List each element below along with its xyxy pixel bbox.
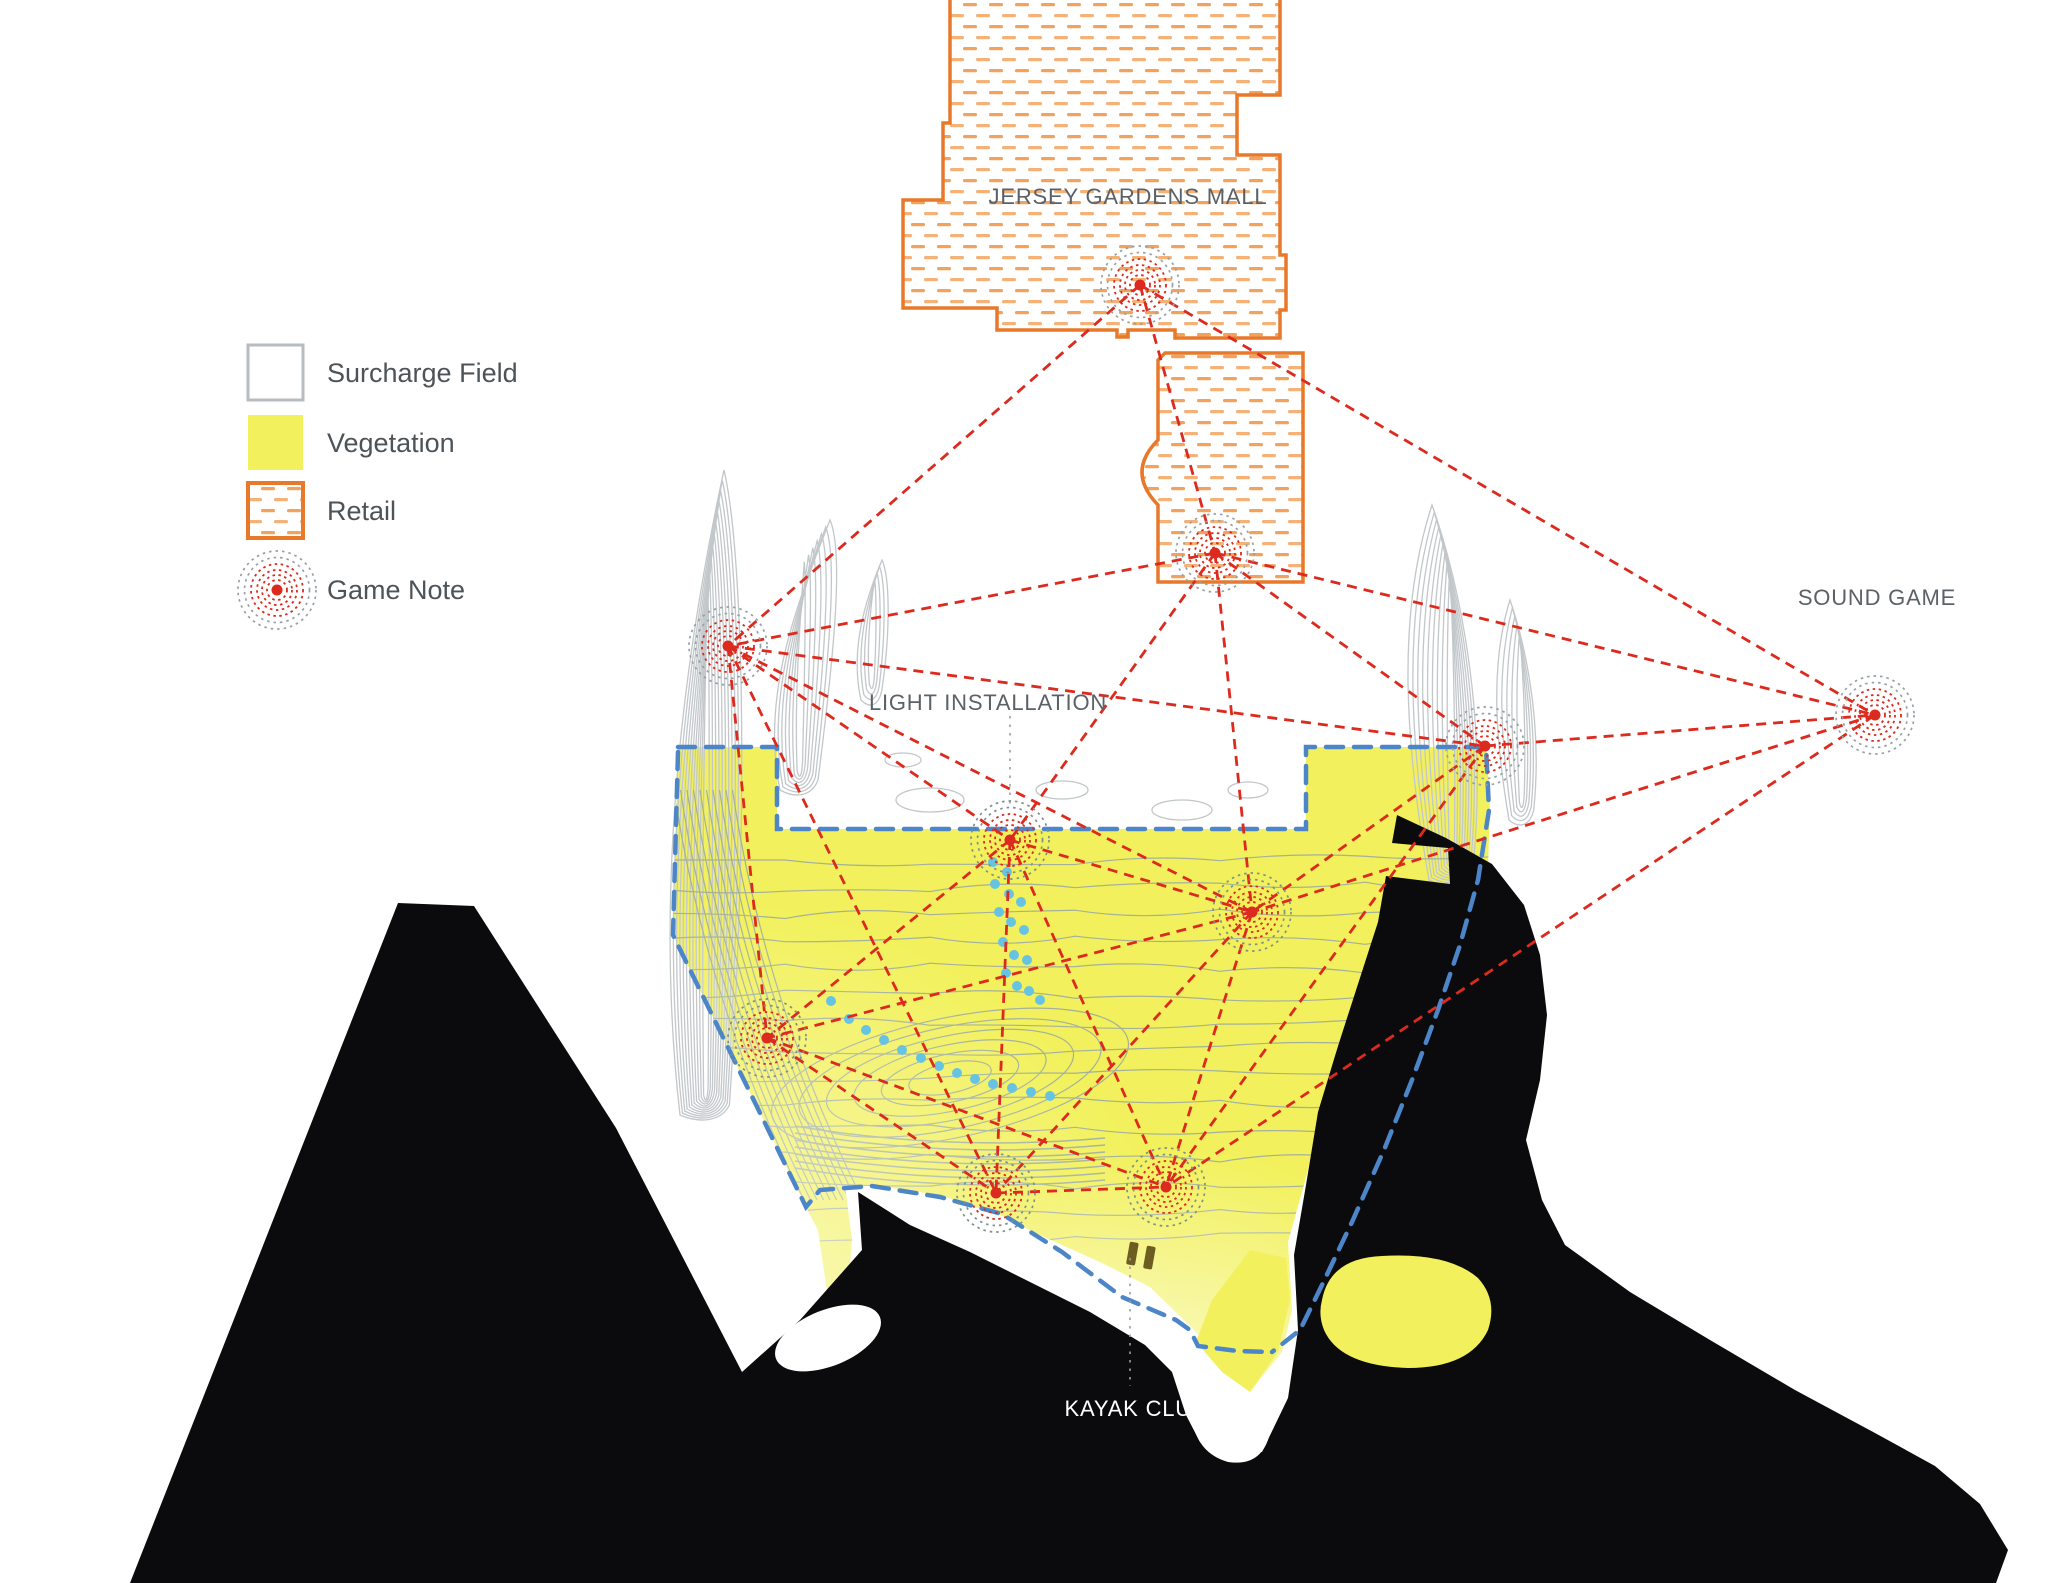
site-diagram-stage: JERSEY GARDENS MALLSOUND GAMELIGHT INSTA…: [0, 0, 2048, 1583]
map-label-sound-game: SOUND GAME: [1798, 585, 1956, 610]
map-label-jersey-gardens-mall: JERSEY GARDENS MALL: [989, 184, 1268, 209]
legend-label-game-note: Game Note: [327, 575, 465, 605]
legend-swatch-vegetation: [248, 415, 303, 470]
map-label-light-installation: LIGHT INSTALLATION: [869, 690, 1107, 715]
map-label-kayak-club: KAYAK CLUB: [1065, 1396, 1208, 1421]
legend-label-surcharge-field: Surcharge Field: [327, 358, 518, 388]
legend-swatch-surcharge: [248, 345, 303, 400]
vegetation-island: [1320, 1255, 1491, 1368]
legend-label-vegetation: Vegetation: [327, 428, 455, 458]
site-diagram-svg: JERSEY GARDENS MALLSOUND GAMELIGHT INSTA…: [0, 0, 2048, 1583]
legend-swatch-retail: [248, 483, 303, 538]
legend-label-retail: Retail: [327, 496, 396, 526]
jersey-gardens-mall-building: [903, 0, 1286, 338]
